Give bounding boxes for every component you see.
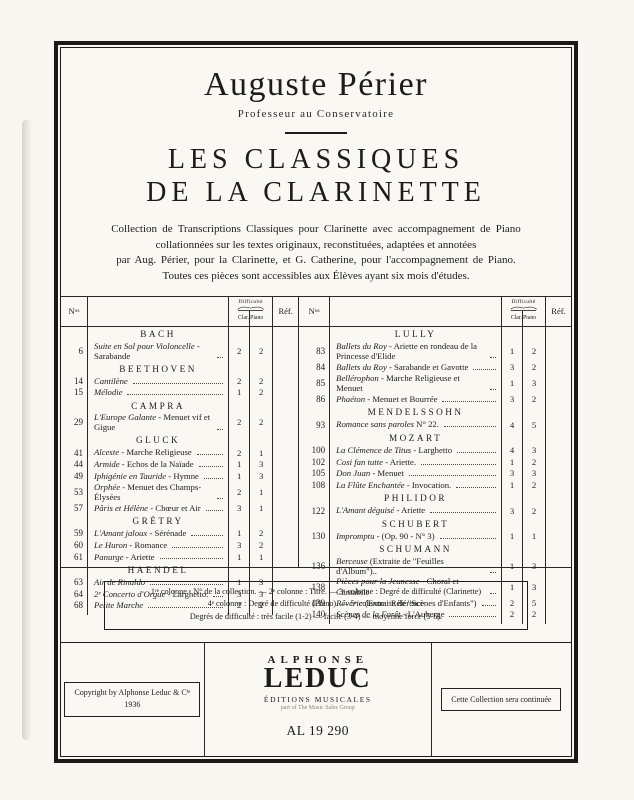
composer-row: MENDELSSOHN — [299, 405, 571, 419]
difficulty-piano: 2 — [249, 341, 272, 362]
piece-number: 68 — [61, 600, 87, 612]
 — [61, 361, 87, 375]
difficulty-piano: 2 — [522, 505, 545, 517]
piece-number: 59 — [61, 528, 87, 540]
 — [545, 620, 571, 624]
 — [61, 611, 87, 615]
composer-row: GLUCK — [61, 433, 298, 447]
reference — [272, 482, 298, 503]
collection-title: LES CLASSIQUES DE LA CLARINETTE — [146, 143, 486, 209]
table-row: 108La Flûte Enchantée - Invocation.12 — [299, 479, 571, 491]
difficulty-clarinette: 2 — [228, 341, 249, 362]
table-row: 49Iphigénie en Tauride - Hymne13 — [61, 470, 298, 482]
difficulty-piano: 1 — [249, 551, 272, 563]
legend-box: 1ʳᵉ colonne : N° de la collection. — 2ᵉ … — [104, 581, 527, 630]
 — [228, 361, 249, 375]
difficulty-clarinette: 3 — [501, 505, 522, 517]
difficulty-piano: 2 — [249, 412, 272, 433]
dotted-leader — [133, 383, 223, 384]
 — [522, 405, 545, 419]
column-header-difficulty: Difficulté Clar. Piano — [228, 297, 272, 326]
composer-name: PHILIDOR — [329, 491, 501, 505]
table-row: 15Mélodie12 — [61, 387, 298, 399]
legend-line: 1ʳᵉ colonne : N° de la collection. — 2ᵉ … — [113, 586, 518, 599]
table-body-left: BACH6Suite en Sol pour Violoncelle - Sar… — [61, 327, 298, 616]
 — [299, 405, 329, 419]
table-row: 102Cosi fan tutte - Ariette.12 — [299, 456, 571, 468]
difficulty-piano: 2 — [522, 341, 545, 362]
 — [61, 398, 87, 412]
dotted-leader — [191, 535, 223, 536]
table-row: 105Don Juan - Menuet33 — [299, 468, 571, 480]
piece-title: L'Amant jaloux - Sérénade — [87, 528, 228, 540]
reference — [545, 444, 571, 456]
 — [249, 514, 272, 528]
 — [501, 542, 522, 556]
piece-number: 130 — [299, 530, 329, 542]
reference — [545, 597, 571, 609]
composer-name: HAENDEL — [87, 562, 228, 576]
 — [299, 516, 329, 530]
piece-number: 57 — [61, 502, 87, 514]
table-row: 130Impromptu - (Op. 90 - N° 3)11 — [299, 530, 571, 542]
difficulty-piano: 3 — [249, 458, 272, 470]
piece-number: 100 — [299, 444, 329, 456]
difficulty-clarinette: 2 — [228, 447, 249, 459]
 — [545, 516, 571, 530]
divider-rule — [285, 132, 347, 134]
piece-number: 49 — [61, 470, 87, 482]
piece-number: 44 — [61, 458, 87, 470]
piece-number: 105 — [299, 468, 329, 480]
reference — [272, 447, 298, 459]
 — [501, 430, 522, 444]
artist-name: Auguste Périer — [204, 68, 428, 102]
table-row: 84Ballets du Roy - Sarabande et Gavotte3… — [299, 361, 571, 373]
 — [545, 542, 571, 556]
table-header-left: Nos Difficulté Clar. Piano Réf. — [61, 297, 298, 327]
piece-title: Berceuse (Extraite de "Feuilles d'Album"… — [329, 556, 501, 577]
piece-number: 53 — [61, 482, 87, 503]
frame-inner: Auguste Périer Professeur au Conservatoi… — [60, 47, 572, 757]
difficulty-piano: 1 — [249, 502, 272, 514]
 — [501, 516, 522, 530]
publisher-logo-sub1: ÉDITIONS MUSICALES — [264, 695, 372, 704]
reference — [272, 375, 298, 387]
 — [545, 327, 571, 341]
composer-name: GLUCK — [87, 433, 228, 447]
 — [272, 562, 298, 576]
composer-row: BACH — [61, 327, 298, 341]
 — [272, 514, 298, 528]
difficulty-piano: 2 — [249, 387, 272, 399]
column-header-title — [329, 297, 501, 326]
column-header-clar: Clar. — [238, 311, 249, 326]
 — [61, 327, 87, 341]
piece-number: 64 — [61, 588, 87, 600]
dotted-leader — [217, 498, 223, 499]
column-header-title — [87, 297, 228, 326]
table-row: 41Alceste - Marche Religieuse21 — [61, 447, 298, 459]
 — [249, 562, 272, 576]
 — [522, 516, 545, 530]
piece-number: 63 — [61, 576, 87, 588]
collection-description: Collection de Transcriptions Classiques … — [74, 222, 559, 284]
 — [522, 327, 545, 341]
dotted-leader — [490, 572, 496, 573]
table-body-right: LULLY83Ballets du Roy - Ariette en ronde… — [299, 327, 571, 625]
piece-title: Iphigénie en Tauride - Hymne — [87, 470, 228, 482]
column-header-ref: Réf. — [545, 297, 571, 326]
difficulty-clarinette: 2 — [228, 412, 249, 433]
 — [228, 514, 249, 528]
difficulty-piano: 3 — [522, 468, 545, 480]
composer-name: BACH — [87, 327, 228, 341]
piece-number: 102 — [299, 456, 329, 468]
reference — [272, 458, 298, 470]
table-row: 93Romance sans paroles N° 22.45 — [299, 419, 571, 431]
copyright-year: 1936 — [74, 699, 190, 711]
dotted-leader — [206, 510, 223, 511]
 — [272, 398, 298, 412]
difficulty-piano: 1 — [249, 447, 272, 459]
 — [522, 542, 545, 556]
 — [228, 562, 249, 576]
table-row: 57Pâris et Hélène - Chœur et Air31 — [61, 502, 298, 514]
piece-number: 122 — [299, 505, 329, 517]
difficulty-clarinette: 1 — [228, 528, 249, 540]
piece-number: 84 — [299, 361, 329, 373]
dotted-leader — [217, 429, 223, 430]
composer-name: GRÉTRY — [87, 514, 228, 528]
publisher-logo-main: LEDUC — [264, 666, 372, 693]
composer-row: GRÉTRY — [61, 514, 298, 528]
 — [228, 433, 249, 447]
piece-number: 29 — [61, 412, 87, 433]
table-row: 60Le Huron - Romance32 — [61, 539, 298, 551]
difficulty-piano: 1 — [249, 482, 272, 503]
catalog-table: Nos Difficulté Clar. Piano Réf. BACH6 — [61, 296, 571, 568]
composer-row: BEETHOVEN — [61, 361, 298, 375]
difficulty-piano: 3 — [249, 470, 272, 482]
reference — [545, 419, 571, 431]
decorative-frame: Auguste Périer Professeur au Conservatoi… — [54, 41, 578, 763]
table-row: 59L'Amant jaloux - Sérénade12 — [61, 528, 298, 540]
column-header-piano: Piano — [522, 311, 536, 326]
collection-note-cell: Cette Collection sera continuée — [431, 643, 571, 756]
difficulty-clarinette: 1 — [501, 373, 522, 394]
composer-name: LULLY — [329, 327, 501, 341]
difficulty-piano: 2 — [522, 393, 545, 405]
difficulty-piano: 2 — [249, 375, 272, 387]
reference — [545, 530, 571, 542]
difficulty-clarinette: 1 — [228, 387, 249, 399]
piece-title: Pâris et Hélène - Chœur et Air — [87, 502, 228, 514]
piece-title: Le Huron - Romance — [87, 539, 228, 551]
legend-line: Degrés de difficulté : très facile (1-2)… — [113, 611, 518, 624]
 — [545, 430, 571, 444]
 — [249, 433, 272, 447]
difficulty-clarinette: 1 — [501, 556, 522, 577]
composer-row: HAENDEL — [61, 562, 298, 576]
composer-row: SCHUBERT — [299, 516, 571, 530]
 — [272, 361, 298, 375]
dotted-leader — [204, 478, 223, 479]
 — [299, 542, 329, 556]
description-line: Collection de Transcriptions Classiques … — [74, 222, 559, 238]
table-row: 86Phaéton - Menuet et Bourrée32 — [299, 393, 571, 405]
piece-title: L'Amant déguisé - Ariette — [329, 505, 501, 517]
column-header-difficulty: Difficulté Clar. Piano — [501, 297, 545, 326]
dotted-leader — [217, 357, 223, 358]
piece-title: Bellérophon - Marche Religieuse et Menue… — [329, 373, 501, 394]
composer-row: PHILIDOR — [299, 491, 571, 505]
 — [522, 430, 545, 444]
collection-title-line1: LES CLASSIQUES — [146, 143, 486, 176]
difficulty-clarinette: 2 — [228, 482, 249, 503]
reference — [272, 528, 298, 540]
reference — [272, 539, 298, 551]
difficulty-clarinette: 3 — [228, 539, 249, 551]
table-row: 44Armide - Echos de la Naïade13 — [61, 458, 298, 470]
dotted-leader — [199, 466, 224, 467]
column-header-number: Nos — [61, 297, 87, 326]
table-row: 122L'Amant déguisé - Ariette32 — [299, 505, 571, 517]
collection-title-line2: DE LA CLARINETTE — [146, 176, 486, 209]
reference — [272, 470, 298, 482]
difficulty-piano: 3 — [522, 556, 545, 577]
composer-name: BEETHOVEN — [87, 361, 228, 375]
difficulty-piano: 2 — [522, 456, 545, 468]
publisher-logo: ALPHONSE LEDUC ÉDITIONS MUSICALES part o… — [264, 654, 372, 739]
 — [299, 327, 329, 341]
piece-title: Ballets du Roy - Ariette en rondeau de l… — [329, 341, 501, 362]
dotted-leader — [457, 452, 496, 453]
difficulty-clarinette: 1 — [228, 458, 249, 470]
collection-note-box: Cette Collection sera continuée — [441, 688, 561, 711]
piece-number: 93 — [299, 419, 329, 431]
difficulty-clarinette: 1 — [228, 470, 249, 482]
difficulty-clarinette: 4 — [501, 419, 522, 431]
difficulty-piano: 5 — [522, 419, 545, 431]
table-header-right: Nos Difficulté Clar. Piano Réf. — [299, 297, 571, 327]
reference — [545, 361, 571, 373]
dotted-leader — [456, 487, 496, 488]
piece-title: Romance sans paroles N° 22. — [329, 419, 501, 431]
composer-name: SCHUBERT — [329, 516, 501, 530]
dotted-leader — [172, 547, 223, 548]
difficulty-clarinette: 1 — [501, 341, 522, 362]
piece-title: La Clémence de Titus - Larghetto — [329, 444, 501, 456]
piece-title: Phaéton - Menuet et Bourrée — [329, 393, 501, 405]
difficulty-piano: 3 — [522, 444, 545, 456]
difficulty-clarinette: 4 — [501, 444, 522, 456]
reference — [272, 387, 298, 399]
 — [61, 514, 87, 528]
piece-title: Alceste - Marche Religieuse — [87, 447, 228, 459]
 — [522, 491, 545, 505]
table-row: 100La Clémence de Titus - Larghetto43 — [299, 444, 571, 456]
 — [272, 327, 298, 341]
table-row: 83Ballets du Roy - Ariette en rondeau de… — [299, 341, 571, 362]
difficulty-piano: 2 — [249, 528, 272, 540]
reference — [545, 393, 571, 405]
difficulty-clarinette: 3 — [228, 502, 249, 514]
table-row: 6Suite en Sol pour Violoncelle - Saraban… — [61, 341, 298, 362]
piece-title: Impromptu - (Op. 90 - N° 3) — [329, 530, 501, 542]
 — [299, 430, 329, 444]
piece-number: 6 — [61, 341, 87, 362]
dotted-leader — [490, 357, 496, 358]
reference — [545, 456, 571, 468]
piece-title: Ballets du Roy - Sarabande et Gavotte — [329, 361, 501, 373]
 — [272, 433, 298, 447]
difficulty-clarinette: 1 — [501, 479, 522, 491]
reference — [272, 502, 298, 514]
piece-number: 60 — [61, 539, 87, 551]
reference — [545, 341, 571, 362]
piece-title: Orphée - Menuet des Champs-Élysées — [87, 482, 228, 503]
 — [61, 433, 87, 447]
reference — [272, 551, 298, 563]
publisher-logo-sub2: part of The Music Sales Group — [281, 705, 355, 711]
reference — [272, 412, 298, 433]
dotted-leader — [160, 558, 224, 559]
dotted-leader — [440, 538, 496, 539]
 — [249, 327, 272, 341]
difficulty-piano: 2 — [522, 361, 545, 373]
 — [501, 405, 522, 419]
scanned-score-cover: Auguste Périer Professeur au Conservatoi… — [0, 0, 634, 800]
dotted-leader — [442, 401, 496, 402]
difficulty-piano: 2 — [249, 539, 272, 551]
reference — [545, 373, 571, 394]
dotted-leader — [409, 475, 496, 476]
legend-line: 4ᵉ colonne : Degré de difficulté (Piano)… — [113, 598, 518, 611]
 — [228, 327, 249, 341]
column-header-clar: Clar. — [511, 311, 522, 326]
piece-number: 136 — [299, 556, 329, 577]
table-row: 85Bellérophon - Marche Religieuse et Men… — [299, 373, 571, 394]
catalog-left-half: Nos Difficulté Clar. Piano Réf. BACH6 — [61, 297, 298, 567]
table-row: 136Berceuse (Extraite de "Feuilles d'Alb… — [299, 556, 571, 577]
piece-title: Mélodie — [87, 387, 228, 399]
reference — [272, 341, 298, 362]
piece-title: Don Juan - Menuet — [329, 468, 501, 480]
difficulty-clarinette: 3 — [501, 468, 522, 480]
 — [501, 491, 522, 505]
reference — [545, 556, 571, 577]
difficulty-clarinette: 3 — [501, 361, 522, 373]
piece-title: Suite en Sol pour Violoncelle - Saraband… — [87, 341, 228, 362]
piece-number: 41 — [61, 447, 87, 459]
composer-row: SCHUMANN — [299, 542, 571, 556]
piece-number: 108 — [299, 479, 329, 491]
difficulty-piano: 3 — [522, 373, 545, 394]
difficulty-clarinette: 1 — [501, 456, 522, 468]
dotted-leader — [490, 389, 496, 390]
copyright-cell: Copyright by Alphonse Leduc & Cⁱᵉ 1936 — [61, 643, 204, 756]
 — [545, 491, 571, 505]
table-row: 29L'Europe Galante - Menuet vif et Gigue… — [61, 412, 298, 433]
piece-title: Panurge - Ariette — [87, 551, 228, 563]
composer-name: SCHUMANN — [329, 542, 501, 556]
composer-row: CAMPRA — [61, 398, 298, 412]
 — [249, 398, 272, 412]
 — [61, 562, 87, 576]
 — [501, 327, 522, 341]
reference — [545, 609, 571, 621]
 — [249, 361, 272, 375]
copyright-text: Copyright by Alphonse Leduc & Cⁱᵉ — [74, 687, 190, 699]
description-line: collationnées sur les textes originaux, … — [74, 238, 559, 254]
dotted-leader — [473, 369, 496, 370]
table-row: 53Orphée - Menuet des Champs-Élysées21 — [61, 482, 298, 503]
catalog-right-half: Nos Difficulté Clar. Piano Réf. LULLY — [298, 297, 571, 567]
difficulty-piano: 2 — [522, 479, 545, 491]
column-header-piano: Piano — [249, 311, 263, 326]
difficulty-piano: 1 — [522, 530, 545, 542]
difficulty-clarinette: 2 — [228, 375, 249, 387]
piece-number: 15 — [61, 387, 87, 399]
difficulty-clarinette: 3 — [501, 393, 522, 405]
piece-number: 86 — [299, 393, 329, 405]
composer-row: LULLY — [299, 327, 571, 341]
piece-title: Cosi fan tutte - Ariette. — [329, 456, 501, 468]
reference — [545, 576, 571, 597]
dotted-leader — [444, 426, 496, 427]
piece-number: 83 — [299, 341, 329, 362]
difficulty-clarinette: 1 — [501, 530, 522, 542]
composer-name: MENDELSSOHN — [329, 405, 501, 419]
publisher-band: Copyright by Alphonse Leduc & Cⁱᵉ 1936 A… — [61, 642, 571, 756]
dotted-leader — [430, 512, 496, 513]
column-header-number: Nos — [299, 297, 329, 326]
reference — [545, 479, 571, 491]
composer-row: MOZART — [299, 430, 571, 444]
piece-title: Cantilène — [87, 375, 228, 387]
 — [228, 398, 249, 412]
piece-number: 14 — [61, 375, 87, 387]
dotted-leader — [197, 454, 223, 455]
artist-subtitle: Professeur au Conservatoire — [238, 108, 394, 120]
piece-title: Armide - Echos de la Naïade — [87, 458, 228, 470]
difficulty-clarinette: 1 — [228, 551, 249, 563]
plate-number: AL 19 290 — [287, 723, 350, 739]
publisher-cell: ALPHONSE LEDUC ÉDITIONS MUSICALES part o… — [204, 643, 431, 756]
composer-name: CAMPRA — [87, 398, 228, 412]
column-header-ref: Réf. — [272, 297, 298, 326]
dotted-leader — [127, 394, 223, 395]
reference — [545, 468, 571, 480]
piece-title: L'Europe Galante - Menuet vif et Gigue — [87, 412, 228, 433]
description-line: Toutes ces pièces sont accessibles aux É… — [74, 269, 559, 285]
piece-number: 61 — [61, 551, 87, 563]
table-row: 61Panurge - Ariette11 — [61, 551, 298, 563]
 — [299, 491, 329, 505]
table-row: 14Cantilène22 — [61, 375, 298, 387]
piece-number: 85 — [299, 373, 329, 394]
description-line: par Aug. Périer, pour la Clarinette, et … — [74, 253, 559, 269]
dotted-leader — [421, 464, 496, 465]
copyright-box: Copyright by Alphonse Leduc & Cⁱᵉ 1936 — [64, 682, 200, 717]
piece-title: La Flûte Enchantée - Invocation. — [329, 479, 501, 491]
reference — [545, 505, 571, 517]
 — [545, 405, 571, 419]
composer-name: MOZART — [329, 430, 501, 444]
